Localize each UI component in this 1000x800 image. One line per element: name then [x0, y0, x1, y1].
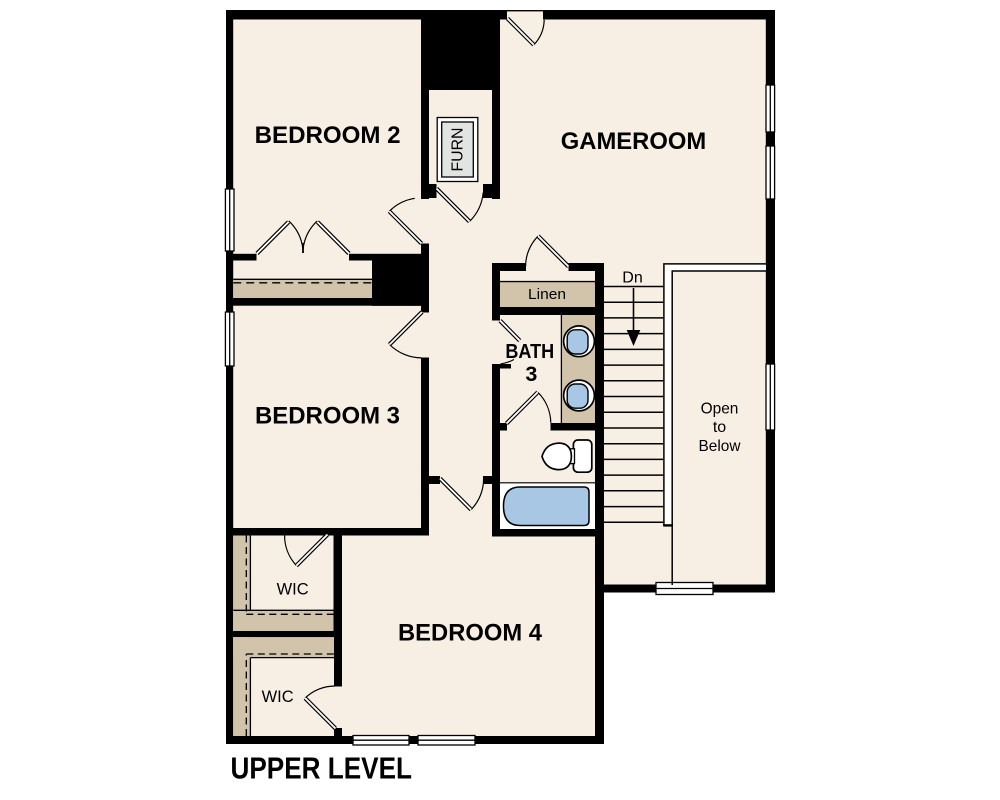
svg-text:GAMEROOM: GAMEROOM [561, 128, 706, 155]
svg-text:to: to [713, 419, 726, 436]
svg-text:BATH: BATH [505, 341, 554, 363]
svg-text:FURN: FURN [450, 128, 467, 172]
svg-text:Linen: Linen [528, 287, 566, 303]
svg-text:Below: Below [699, 438, 741, 455]
svg-text:BEDROOM 2: BEDROOM 2 [255, 122, 401, 149]
svg-text:Open: Open [701, 401, 739, 418]
svg-text:BEDROOM 4: BEDROOM 4 [398, 620, 542, 647]
svg-text:BEDROOM 3: BEDROOM 3 [255, 403, 400, 430]
svg-text:WIC: WIC [277, 580, 309, 599]
svg-text:3: 3 [525, 362, 537, 386]
svg-text:Dn: Dn [622, 269, 643, 286]
svg-text:UPPER LEVEL: UPPER LEVEL [231, 752, 413, 786]
svg-text:WIC: WIC [262, 687, 294, 706]
